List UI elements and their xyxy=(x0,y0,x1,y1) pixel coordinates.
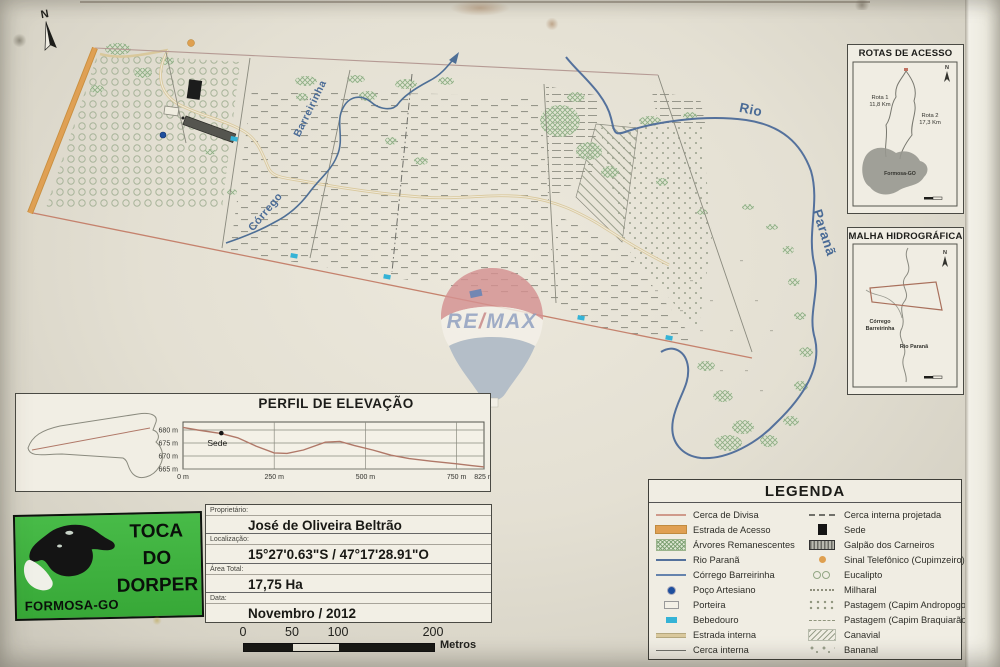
legend-item: Poço Artesiano xyxy=(655,582,806,597)
legend-label: Porteira xyxy=(693,600,726,610)
svg-text:0 m: 0 m xyxy=(177,474,189,481)
info-row-value: José de Oliveira Beltrão xyxy=(206,516,491,533)
rota-1-line xyxy=(885,71,906,157)
info-row-label: Localização: xyxy=(206,534,491,545)
info-row-value: Novembro / 2012 xyxy=(206,604,491,621)
info-row-label: Área Total: xyxy=(206,564,491,575)
logo-title: TOCA DO DORPER xyxy=(115,517,199,600)
rio-label: Rio xyxy=(738,100,764,120)
inset-rotas-de-acesso: ROTAS DE ACESSO Rota 1 11,8 Km Rota 2 17… xyxy=(847,44,964,214)
info-row-label: Data: xyxy=(206,593,491,604)
svg-text:750 m: 750 m xyxy=(447,474,467,481)
property-info-table: Proprietário:José de Oliveira BeltrãoLoc… xyxy=(205,504,492,623)
info-row: Área Total:17,75 Ha xyxy=(206,564,491,593)
info-row-value: 15°27'0.63"S / 47°17'28.91"O xyxy=(206,545,491,562)
malha-rio-label: Rio Paranã xyxy=(900,344,929,350)
milharal-symbol xyxy=(806,584,838,596)
cerca-divisa-symbol xyxy=(655,509,687,521)
logo-line-2: DO xyxy=(116,544,199,573)
small-structure-dot xyxy=(182,117,185,120)
legend-label: Cerca interna projetada xyxy=(844,510,941,520)
logo-line-1: TOCA xyxy=(115,517,198,546)
rio-symbol xyxy=(655,554,687,566)
legend-label: Pastagem (Capim Braquiarão) xyxy=(844,615,970,625)
sede-symbol xyxy=(806,524,838,536)
legend-label: Estrada de Acesso xyxy=(693,525,771,535)
info-row-label: Proprietário: xyxy=(206,505,491,516)
svg-text:665 m: 665 m xyxy=(159,466,179,473)
poco-symbol xyxy=(655,584,687,596)
north-label: N xyxy=(40,8,50,21)
svg-text:675 m: 675 m xyxy=(159,440,179,447)
info-row: Localização:15°27'0.63"S / 47°17'28.91"O xyxy=(206,534,491,563)
legend-item: Estrada de Acesso xyxy=(655,522,806,537)
legend-item: Canavial xyxy=(806,628,957,643)
andropogon-symbol xyxy=(806,599,838,611)
legend-title: LEGENDA xyxy=(649,480,961,503)
legend-label: Bebedouro xyxy=(693,615,739,625)
bebedouro-symbol xyxy=(655,614,687,626)
malha-rio-line xyxy=(900,248,909,382)
legend-item: Porteira xyxy=(655,598,806,613)
legend-column-left: Cerca de DivisaEstrada de AcessoÁrvores … xyxy=(655,507,806,658)
svg-text:N: N xyxy=(943,250,947,256)
estrada-interna-symbol xyxy=(655,629,687,641)
svg-text:500 m: 500 m xyxy=(356,474,376,481)
scale-bar: 0 50 100 200 Metros xyxy=(230,622,480,658)
sinal-symbol xyxy=(806,554,838,566)
legend-item: Cerca de Divisa xyxy=(655,507,806,522)
remax-balloon-watermark: RE/MAX xyxy=(441,268,543,407)
legend-item: Rio Paranã xyxy=(655,552,806,567)
legend-label: Galpão dos Carneiros xyxy=(844,540,934,550)
sede-marker xyxy=(187,79,203,100)
property-origin-tick xyxy=(904,68,908,71)
malha-north-arrow: N xyxy=(942,250,948,267)
rota-2-line xyxy=(900,71,915,159)
logo-line-3: DORPER xyxy=(116,571,199,600)
rotas-map: Rota 1 11,8 Km Rota 2 17,3 Km Formosa-GO… xyxy=(848,45,963,213)
poco-artesiano-marker xyxy=(160,132,166,138)
legend-label: Sinal Telefônico (Cupimzeiro) xyxy=(844,555,965,565)
rotas-city-label: Formosa-GO xyxy=(884,171,916,177)
legend-label: Milharal xyxy=(844,585,877,595)
logo-city: FORMOSA-GO xyxy=(25,597,119,614)
frame-edge-top xyxy=(80,1,870,3)
scale-unit: Metros xyxy=(440,639,476,651)
legend-item: Estrada interna xyxy=(655,628,806,643)
malha-corrego-label-2: Barreirinha xyxy=(866,326,896,332)
scale-tick-50: 50 xyxy=(285,625,299,639)
toca-do-dorper-logo: TOCA DO DORPER FORMOSA-GO xyxy=(13,511,204,621)
scale-bar-segments xyxy=(243,643,435,652)
legend-item: Milharal xyxy=(806,582,957,597)
legend-item: Árvores Remanescentes xyxy=(655,537,806,552)
svg-text:680 m: 680 m xyxy=(159,427,179,434)
braquiarao-symbol xyxy=(806,614,838,626)
transect-line xyxy=(32,428,150,450)
estrada-acesso-symbol xyxy=(655,524,687,536)
legend-label: Árvores Remanescentes xyxy=(693,540,795,550)
legend-label: Cerca de Divisa xyxy=(693,510,759,520)
svg-text:250 m: 250 m xyxy=(264,474,284,481)
eucalipto-symbol xyxy=(806,569,838,581)
legend-item: Sinal Telefônico (Cupimzeiro) xyxy=(806,552,957,567)
scale-tick-200: 200 xyxy=(423,625,444,639)
cerca-interna-symbol xyxy=(655,644,687,656)
malha-corrego-label-1: Córrego xyxy=(870,319,892,325)
rotas-north-arrow: N xyxy=(944,65,950,82)
legend-column-right: Cerca interna projetadaSedeGalpão dos Ca… xyxy=(806,507,957,658)
legend-item: Cerca interna xyxy=(655,643,806,658)
legend-item: Cerca interna projetada xyxy=(806,507,957,522)
elevation-profile-box: PERFIL DE ELEVAÇÃO 680 m675 m670 m665 m0… xyxy=(15,393,491,492)
rotas-mini-scale xyxy=(924,197,942,200)
canavial-symbol xyxy=(806,629,838,641)
malha-map: Córrego Barreirinha Rio Paranã N xyxy=(848,228,963,394)
legend-item: Bebedouro xyxy=(655,613,806,628)
legend-label: Bananal xyxy=(844,645,878,655)
legend-label: Córrego Barreirinha xyxy=(693,570,775,580)
corrego-symbol xyxy=(655,569,687,581)
porteira-symbol xyxy=(655,599,687,611)
legend-label: Cerca interna xyxy=(693,645,749,655)
galpao-symbol xyxy=(806,539,838,551)
legend-label: Poço Artesiano xyxy=(693,585,756,595)
cerca-projetada-symbol xyxy=(806,509,838,521)
bananal-symbol xyxy=(806,644,838,656)
legend-item: Pastagem (Capim Braquiarão) xyxy=(806,613,957,628)
malha-mini-scale xyxy=(924,376,942,379)
svg-text:670 m: 670 m xyxy=(159,453,179,460)
legend-item: Eucalipto xyxy=(806,567,957,582)
framed-property-map-photo: Barreirinha Córrego Rio Paranã N RE/MAX … xyxy=(0,0,1000,667)
porteira-marker xyxy=(164,106,179,116)
legend-label: Sede xyxy=(844,525,866,535)
frame-edge-right xyxy=(965,0,1000,667)
rota2-dist: 17,3 Km xyxy=(919,120,941,126)
remax-wordmark: RE/MAX xyxy=(447,310,538,333)
legend-label: Estrada interna xyxy=(693,630,756,640)
legend-label: Rio Paranã xyxy=(693,555,740,565)
rota1-name: Rota 1 xyxy=(871,95,888,101)
legend-label: Pastagem (Capim Andropogon) xyxy=(844,600,974,610)
north-arrow: N xyxy=(38,8,57,50)
rota1-dist: 11,8 Km xyxy=(869,102,890,108)
info-row: Data:Novembro / 2012 xyxy=(206,593,491,622)
legend-item: Galpão dos Carneiros xyxy=(806,537,957,552)
legend-label: Canavial xyxy=(844,630,880,640)
rota2-name: Rota 2 xyxy=(921,113,938,119)
legend-label: Eucalipto xyxy=(844,570,882,580)
svg-text:N: N xyxy=(945,65,949,71)
sinal-telefonico-marker xyxy=(188,40,195,47)
legend-box: LEGENDA Cerca de DivisaEstrada de Acesso… xyxy=(648,479,962,660)
field-patches xyxy=(46,53,712,342)
info-row-value: 17,75 Ha xyxy=(206,575,491,592)
scale-tick-100: 100 xyxy=(328,625,349,639)
inset-malha-hidrografica: MALHA HIDROGRÁFICA Córrego Barreirinha R… xyxy=(847,227,964,395)
arvores-symbol xyxy=(655,539,687,551)
elevation-title: PERFIL DE ELEVAÇÃO xyxy=(186,396,486,411)
svg-text:825 m: 825 m xyxy=(474,474,490,481)
scale-tick-0: 0 xyxy=(240,625,247,639)
info-row: Proprietário:José de Oliveira Beltrão xyxy=(206,505,491,534)
legend-item: Bananal xyxy=(806,643,957,658)
legend-item: Córrego Barreirinha xyxy=(655,567,806,582)
parana-label: Paranã xyxy=(810,207,839,257)
legend-item: Pastagem (Capim Andropogon) xyxy=(806,598,957,613)
legend-item: Sede xyxy=(806,522,957,537)
svg-text:Sede: Sede xyxy=(207,438,227,448)
transect-mini-shape xyxy=(28,413,163,477)
